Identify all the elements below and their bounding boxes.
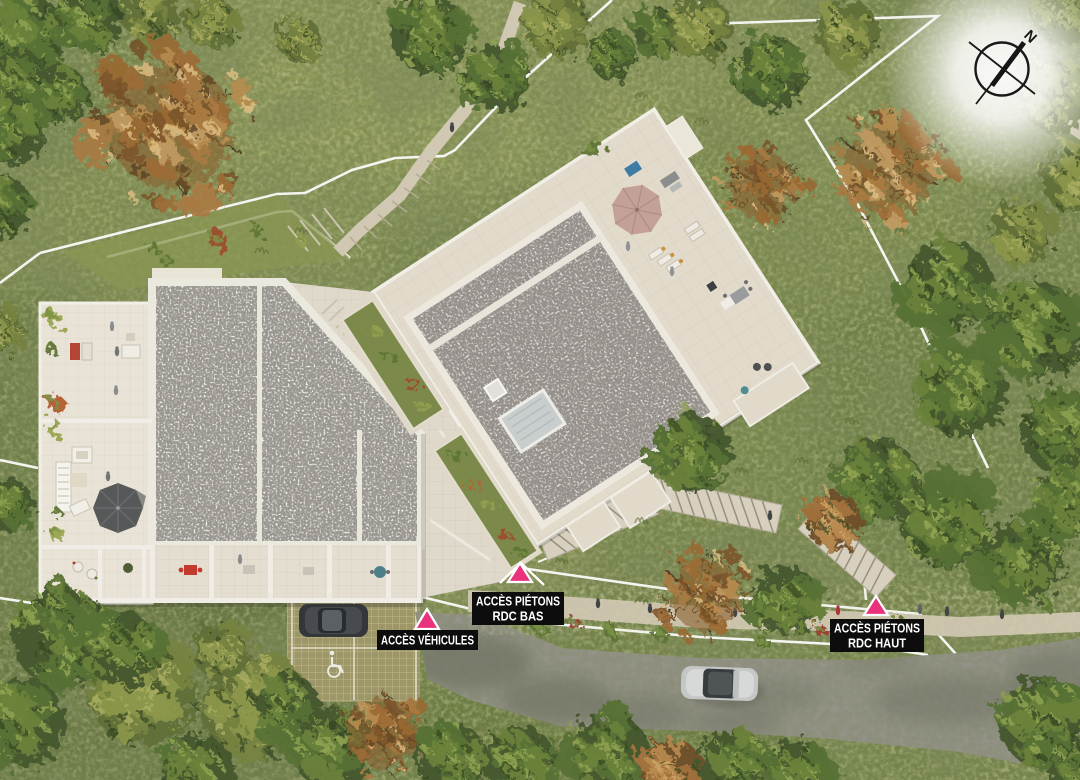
svg-text:ACCÈS VÉHICULES: ACCÈS VÉHICULES xyxy=(381,633,474,648)
svg-text:ACCÈS PIÉTONS: ACCÈS PIÉTONS xyxy=(476,594,560,609)
svg-text:RDC BAS: RDC BAS xyxy=(493,609,544,624)
svg-text:ACCÈS PIÉTONS: ACCÈS PIÉTONS xyxy=(834,621,920,636)
svg-text:RDC HAUT: RDC HAUT xyxy=(848,636,906,651)
